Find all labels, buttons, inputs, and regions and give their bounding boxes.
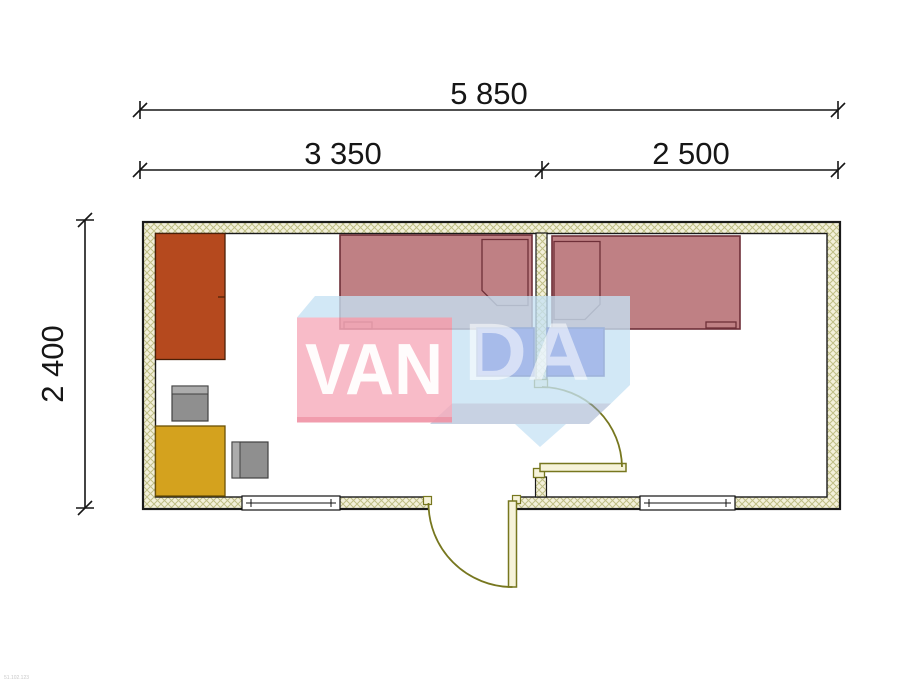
door-jamb-block: [424, 497, 432, 505]
door-opening: [429, 495, 517, 512]
dimension-room-widths: 3 350 2 500: [133, 136, 845, 179]
dimension-label-left-room: 3 350: [304, 136, 382, 171]
wardrobe: [156, 234, 226, 360]
window-right-room: [640, 496, 735, 510]
chair-backrest: [172, 386, 208, 394]
entrance-door: [424, 495, 521, 588]
watermark-box-shadow: [430, 404, 611, 425]
chair-backrest: [232, 442, 240, 478]
partition-wall-stub: [536, 477, 547, 497]
door-leaf: [509, 501, 517, 587]
dimension-label-overall-width: 5 850: [450, 76, 528, 111]
floor-plan-drawing: 5 850 3 350 2 500 2 400: [0, 0, 924, 700]
dimension-overall-width: 5 850: [133, 76, 845, 119]
window-left-room: [242, 496, 340, 510]
table: [156, 426, 226, 496]
door-leaf: [540, 464, 626, 472]
dimension-label-right-room: 2 500: [652, 136, 730, 171]
watermark-text-front: VAN: [305, 330, 443, 410]
footer-code: 51.102.123: [4, 675, 29, 681]
floor-plan-canvas: 5 850 3 350 2 500 2 400: [0, 0, 924, 700]
door-swing-arc: [429, 503, 513, 587]
dimension-label-overall-height: 2 400: [35, 325, 70, 403]
watermark-text-side: DA: [464, 307, 590, 398]
dimension-overall-height: 2 400: [35, 213, 94, 515]
watermark-box-front-edge: [297, 417, 452, 423]
